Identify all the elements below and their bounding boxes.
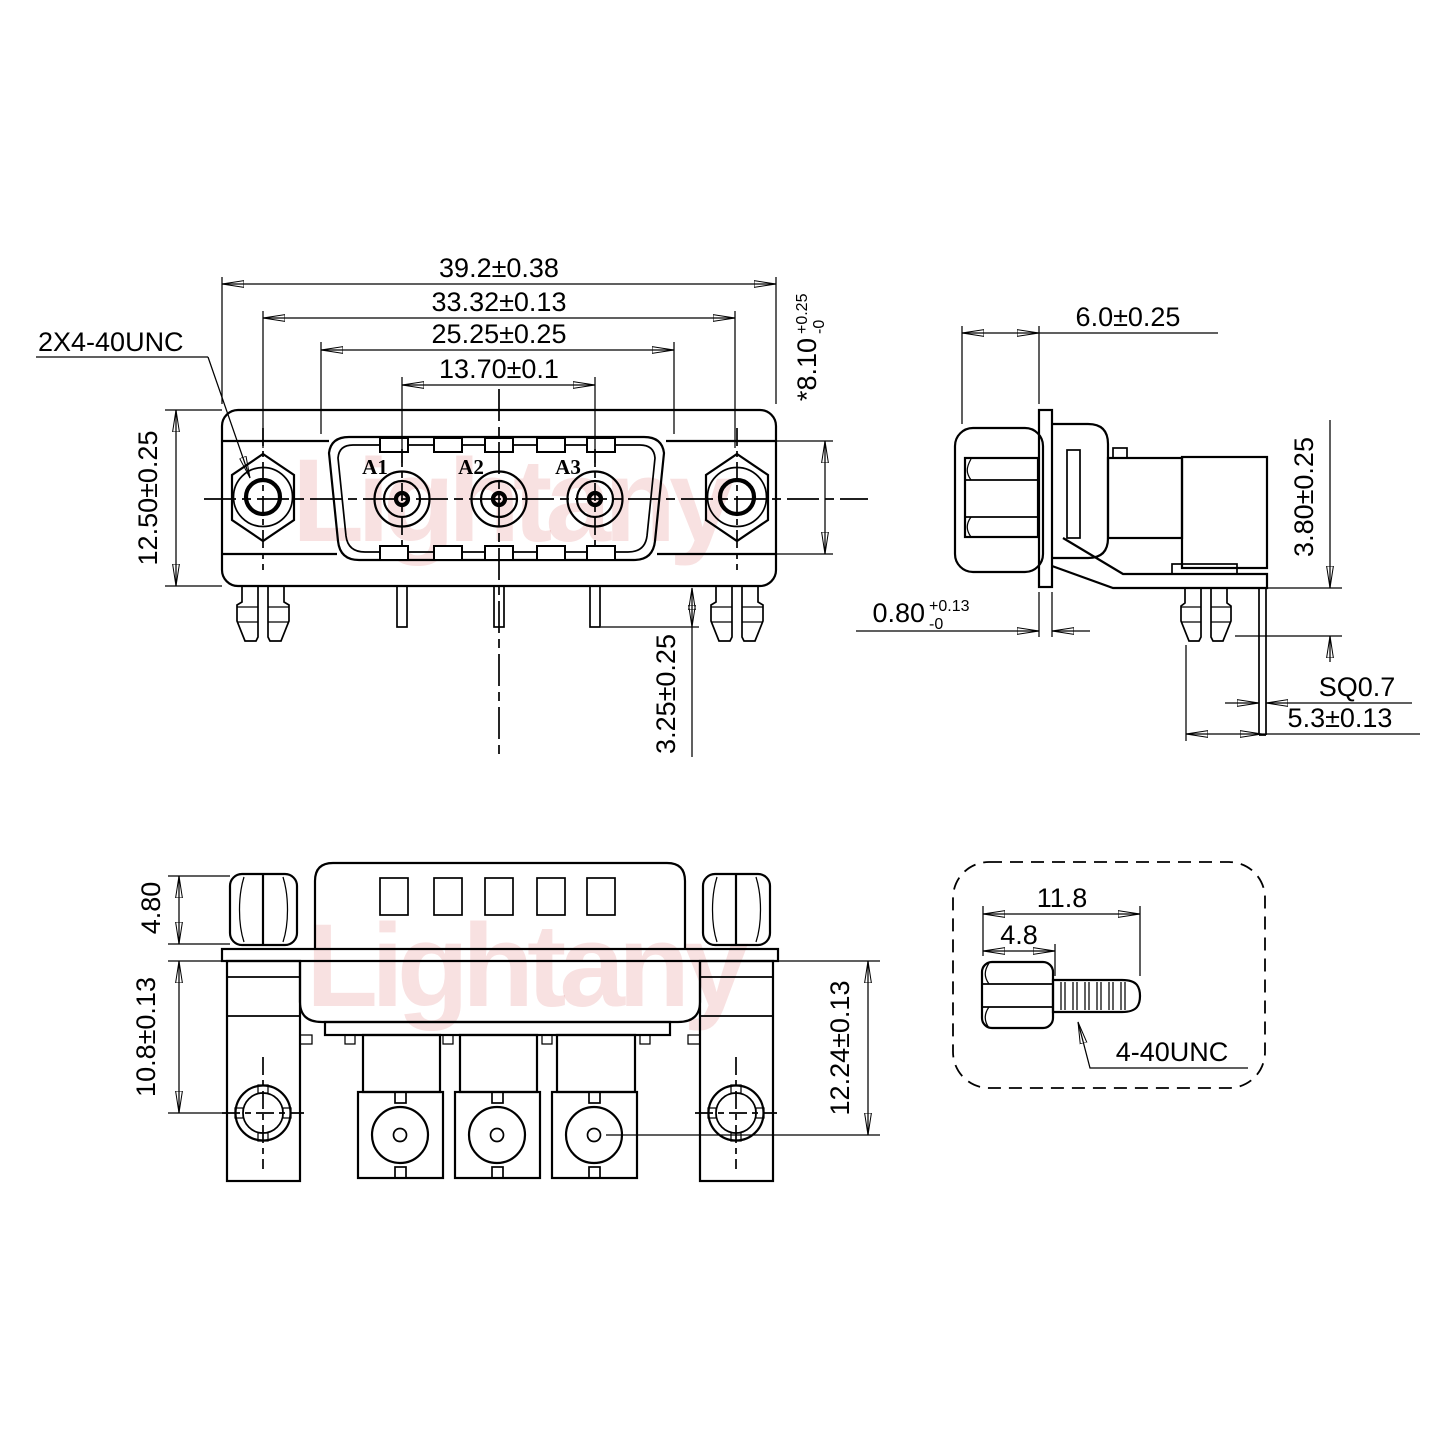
svg-text:12.50±0.25: 12.50±0.25: [133, 431, 163, 566]
svg-text:12.24±0.13: 12.24±0.13: [825, 981, 855, 1116]
front-thread-leader: [208, 357, 250, 478]
dim-total-width: 39.2±0.38: [439, 253, 559, 283]
side-bracket: [1052, 538, 1267, 588]
dim-post-height: 10.8±0.13: [131, 977, 161, 1097]
square-pin-side: [1259, 588, 1266, 735]
svg-text:+0.25: +0.25: [794, 293, 811, 334]
drawing-page: Lightany Lightany: [0, 0, 1440, 1440]
svg-text:-0: -0: [811, 320, 828, 334]
side-shell-edge: [1067, 450, 1080, 538]
svg-text:*8.10: *8.10: [792, 338, 822, 401]
side-contact-block: [1182, 457, 1267, 568]
board-lock-side: [1181, 588, 1231, 641]
bottom-pips: [300, 1035, 700, 1044]
dim-contact-depth: 12.24±0.13: [825, 981, 855, 1116]
screw-thread-label: 4-40UNC: [1116, 1037, 1229, 1067]
bottom-coax-modules: [358, 1035, 637, 1178]
dim-pin-offset: 5.3±0.13: [1288, 703, 1393, 733]
dim-flange-thickness: 0.80 +0.13 -0: [872, 598, 969, 633]
contact-label-a2: A2: [458, 455, 484, 479]
dim-insert-height: *8.10 +0.25 -0: [792, 293, 828, 401]
screw-dimensions: 11.8 4.8 4-40UNC: [983, 883, 1248, 1068]
svg-text:3.80±0.25: 3.80±0.25: [1289, 437, 1319, 557]
dim-body-height: 12.50±0.25: [133, 431, 163, 566]
bottom-centerlines: [222, 1057, 777, 1169]
svg-text:4.80: 4.80: [136, 882, 166, 935]
front-thread-label: 2X4-40UNC: [38, 327, 184, 357]
dim-contact-span: 13.70±0.1: [439, 354, 559, 384]
side-contact-barrel: [1108, 458, 1182, 538]
dim-pin-length: 3.25±0.25: [651, 634, 681, 754]
watermark-bottom: Lightany: [306, 900, 748, 1032]
svg-text:+0.13: +0.13: [929, 598, 970, 615]
dim-peg-height: 3.80±0.25: [1289, 437, 1319, 557]
svg-text:3.25±0.25: 3.25±0.25: [651, 634, 681, 754]
dim-screw-head-length: 4.8: [1000, 920, 1038, 950]
dim-standoff-length: 6.0±0.25: [1076, 302, 1181, 332]
screw-detail: 11.8 4.8 4-40UNC: [953, 862, 1265, 1088]
dim-mount-span: 33.32±0.13: [432, 287, 567, 317]
board-locks-front: [237, 586, 763, 641]
dim-nut-height: 4.80: [136, 882, 166, 935]
contact-label-a1: A1: [362, 455, 388, 479]
dim-shell-width: 25.25±0.25: [432, 319, 567, 349]
svg-text:10.8±0.13: 10.8±0.13: [131, 977, 161, 1097]
svg-text:0.80: 0.80: [872, 598, 925, 628]
jackscrew: [982, 962, 1140, 1028]
side-jackscrew-hex: [955, 428, 1043, 572]
contact-label-a3: A3: [555, 455, 581, 479]
connector-technical-drawing: Lightany Lightany: [0, 0, 1440, 1440]
dim-screw-total-length: 11.8: [1037, 883, 1088, 913]
side-dimensions: 6.0±0.25 0.80 +0.13 -0 3.80±0.25 SQ0.7 5…: [856, 302, 1420, 741]
screw-head: [982, 962, 1053, 1028]
dim-pin-square: SQ0.7: [1319, 672, 1396, 702]
side-view: 6.0±0.25 0.80 +0.13 -0 3.80±0.25 SQ0.7 5…: [856, 302, 1420, 741]
